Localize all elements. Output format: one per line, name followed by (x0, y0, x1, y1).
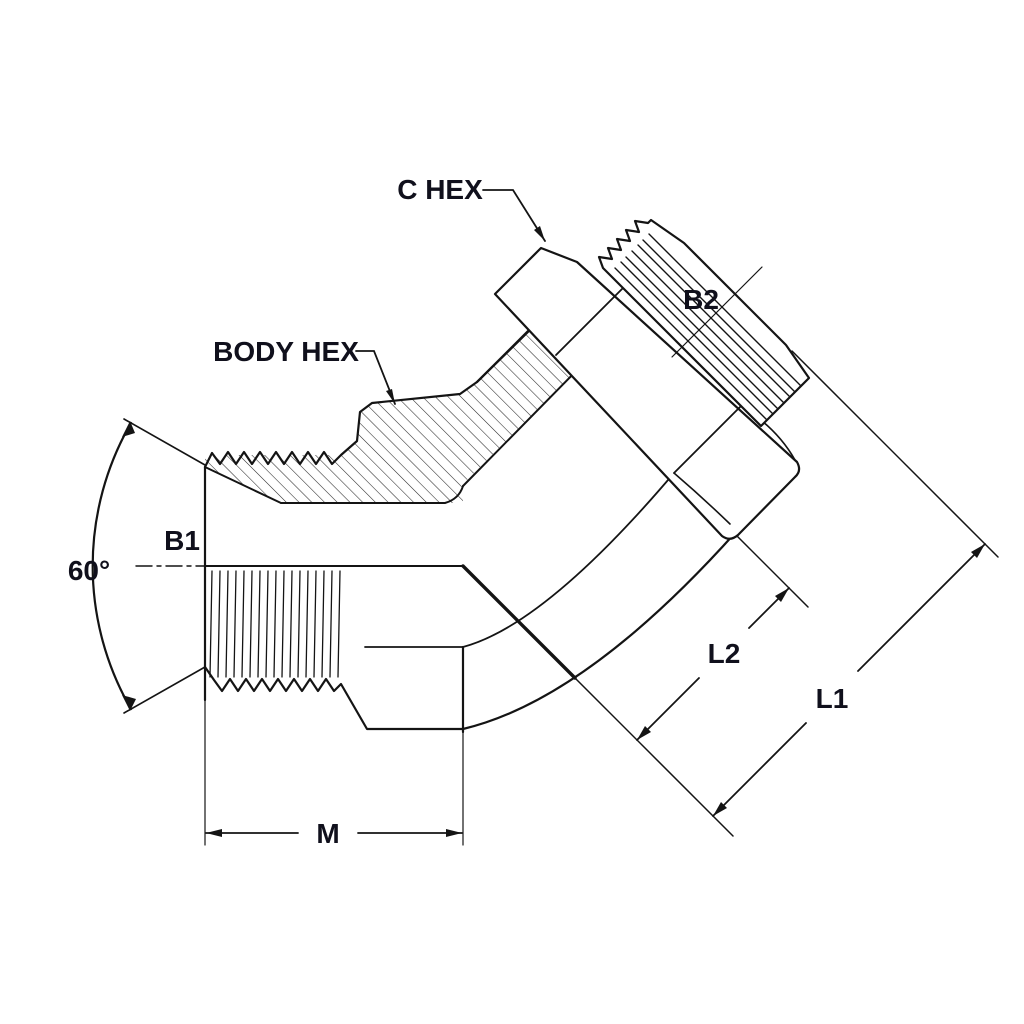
c-hex-label: C HEX (397, 174, 483, 205)
body-hex-leader (356, 351, 395, 404)
extension-thread-tip (792, 351, 998, 557)
angle-label: 60° (68, 555, 110, 586)
body-hex-label: BODY HEX (213, 336, 359, 367)
c-hex-leader (483, 190, 545, 241)
l1-label: L1 (816, 683, 849, 714)
left-thread-flanks (210, 571, 340, 677)
l2-label: L2 (708, 638, 741, 669)
b2-label: B2 (683, 284, 719, 315)
left-thread-bottom-profile (205, 667, 463, 729)
dimension-l1 (713, 544, 985, 816)
extension-corner (575, 678, 733, 836)
fitting-diagram: C HEX BODY HEX B1 B2 60° L2 L1 M (0, 0, 1024, 1024)
m-label: M (316, 818, 339, 849)
extension-nut-face (737, 536, 808, 607)
miter-edge (463, 566, 575, 678)
b1-label: B1 (164, 525, 200, 556)
elbow-underside-inner-arc (463, 473, 674, 647)
elbow-underside-outer-arc (463, 533, 735, 729)
drawing-canvas: C HEX BODY HEX B1 B2 60° L2 L1 M (0, 0, 1024, 1024)
